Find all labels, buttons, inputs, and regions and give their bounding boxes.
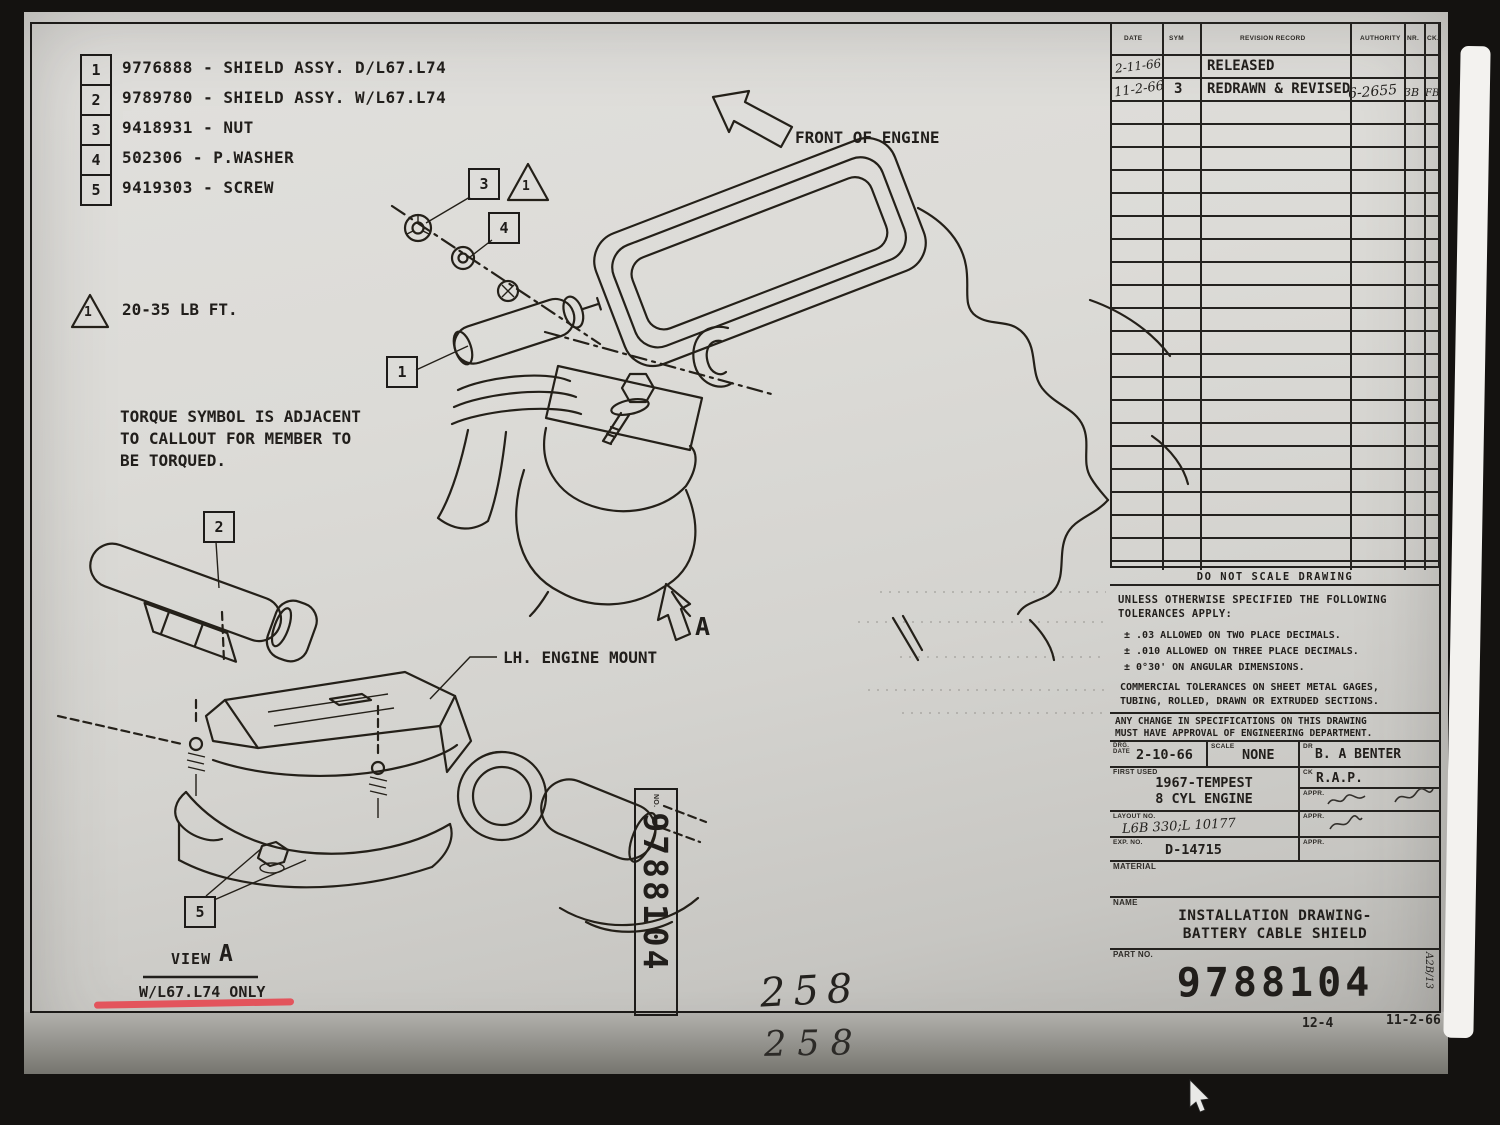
scanned-drawing-screenshot: 1 9776888 - SHIELD ASSY. D/L67.L74 2 978… [0,0,1500,1125]
cursor-layer [0,0,1500,1125]
mouse-cursor [1190,1080,1209,1112]
